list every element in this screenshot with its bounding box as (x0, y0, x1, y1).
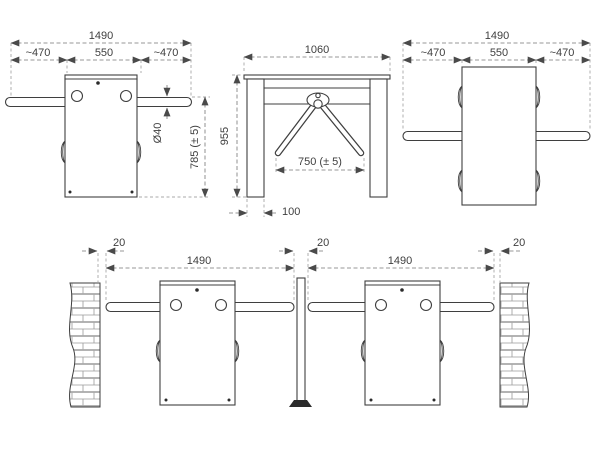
hinge-right (440, 340, 444, 362)
cabinet-top-view (61, 75, 141, 197)
dimension-arm-span: 750 (± 5) (276, 156, 364, 174)
top-right-overall-width-label: 1490 (485, 30, 509, 42)
lock-dot (400, 288, 404, 292)
left-arm (308, 303, 365, 312)
arm-span-label: 750 (± 5) (298, 156, 342, 168)
top-left-right-arm-label: ~470 (154, 47, 179, 59)
dimension-segments: ~470 550 ~470 (11, 47, 191, 60)
lock-dot (195, 288, 199, 292)
tripod-mechanism (278, 93, 361, 153)
pushbutton-left (171, 300, 182, 311)
dimension-leg-width: 100 (229, 206, 300, 218)
hinge-right (137, 141, 141, 163)
top-left-left-arm-label: ~470 (26, 47, 51, 59)
dimension-center-gap: 20 (279, 237, 329, 251)
pushbutton-right (216, 300, 227, 311)
arm-diameter-label: Ø40 (152, 123, 164, 144)
dimension-lane2: 1490 (308, 255, 494, 268)
pushbutton-right (121, 91, 132, 102)
technical-drawing-page: 1490 ~470 550 ~470 (0, 0, 600, 451)
center-post (289, 278, 312, 407)
dimension-lane1: 1490 (106, 255, 294, 268)
right-arm (137, 98, 192, 107)
top-view-right: 1490 ~470 550 ~470 (403, 30, 590, 205)
pushbutton-right (421, 300, 432, 311)
right-arm (536, 132, 590, 141)
left-wall-gap-label: 20 (113, 237, 125, 249)
turnstile-dimensional-drawing: 1490 ~470 550 ~470 (0, 0, 600, 451)
wall-right (500, 283, 529, 407)
hinge-left (361, 340, 365, 362)
left-arm (6, 98, 66, 107)
hinge-right (235, 340, 239, 362)
pushbutton-left (72, 91, 83, 102)
lock-dot (96, 81, 100, 85)
post-base (289, 400, 312, 407)
turnstile-1 (106, 281, 294, 405)
leg-width-label: 100 (282, 206, 300, 218)
right-arm (440, 303, 494, 312)
front-height-label: 955 (219, 127, 231, 145)
top-left-cabinet-width-label: 550 (95, 47, 113, 59)
top-right-left-arm-label: ~470 (421, 47, 446, 59)
front-overall-width-label: 1060 (305, 44, 329, 56)
dimension-segments: ~470 550 ~470 (403, 47, 590, 60)
arm-height-label: 785 (± 5) (189, 125, 201, 169)
dimension-overall-width: 1490 (11, 30, 191, 43)
wall-left (70, 283, 100, 407)
right-arm (235, 303, 294, 312)
dimension-right-wall-gap: 20 (478, 237, 525, 251)
top-right-cabinet-width-label: 550 (490, 47, 508, 59)
dimension-left-wall-gap: 20 (82, 237, 125, 251)
hinge-left (156, 340, 160, 362)
left-leg (247, 79, 264, 197)
dimension-arm-diameter: Ø40 (152, 85, 167, 143)
pushbutton-left (376, 300, 387, 311)
hinge-top-right (536, 86, 540, 108)
center-gap-label: 20 (317, 237, 329, 249)
hinge-top-left (458, 86, 462, 108)
dimension-overall-width: 1060 (244, 44, 390, 57)
front-view: 1060 750 (± 5) 9 (219, 44, 390, 218)
installation-layout: 20 20 20 1490 1490 (70, 237, 530, 407)
hinge-left (61, 141, 65, 163)
top-left-overall-width-label: 1490 (89, 30, 113, 42)
top-bar (244, 75, 390, 79)
top-view-left: 1490 ~470 550 ~470 (6, 30, 211, 197)
right-leg (370, 79, 387, 197)
hinge-bottom-right (536, 170, 540, 192)
cabinet-top-view (458, 67, 540, 205)
top-right-right-arm-label: ~470 (550, 47, 575, 59)
dimension-overall-height: 955 (219, 75, 237, 197)
lane1-width-label: 1490 (187, 255, 211, 267)
right-wall-gap-label: 20 (513, 237, 525, 249)
turnstile-2 (308, 281, 494, 405)
dimension-overall-width: 1490 (403, 30, 590, 43)
hinge-bottom-left (458, 170, 462, 192)
left-arm (106, 303, 160, 312)
left-arm (403, 132, 462, 141)
lane2-width-label: 1490 (388, 255, 412, 267)
dimension-arm-height: 785 (± 5) (189, 97, 205, 197)
